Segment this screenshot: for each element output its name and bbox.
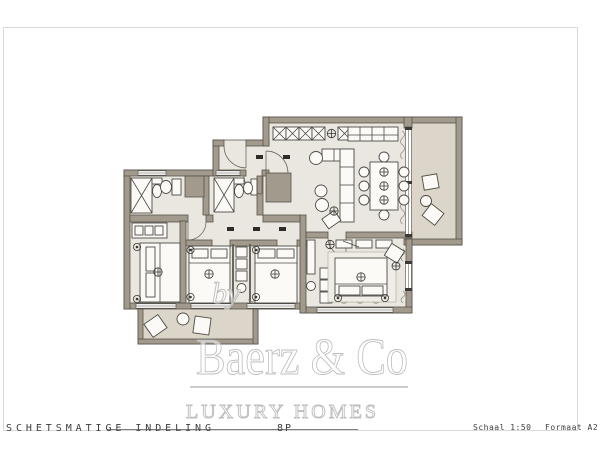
coffee-table — [316, 199, 329, 212]
desk — [307, 240, 315, 274]
dining-chair — [399, 195, 409, 205]
light-symbol — [392, 262, 400, 270]
place-setting — [380, 182, 388, 190]
dining-chair — [399, 181, 409, 191]
light-symbol — [154, 268, 162, 276]
living-closet — [266, 173, 291, 202]
bedroom-3 — [252, 246, 297, 303]
terrace-table — [177, 313, 189, 325]
place-setting — [380, 168, 388, 176]
light-symbol — [330, 207, 338, 215]
tv-cabinet — [336, 240, 392, 248]
x-closet-icon — [273, 127, 286, 140]
floor-plan-drawing: by Baerz & Co LUXURY HOMES SCHETSMATIGE … — [0, 0, 600, 449]
drawing-sheet: by Baerz & Co LUXURY HOMES SCHETSMATIGE … — [0, 0, 600, 449]
place-setting — [380, 196, 388, 204]
title-block: SCHETSMATIGE INDELING 8P Schaal 1:50 For… — [6, 423, 598, 434]
chair — [307, 282, 316, 291]
wardrobe-row — [273, 127, 351, 140]
floor-plan — [124, 117, 462, 344]
light-symbol — [326, 240, 334, 248]
light-symbol — [327, 129, 335, 137]
dining-chair — [379, 210, 389, 220]
bed — [133, 243, 180, 303]
kitchen-counter — [348, 127, 398, 141]
terrace-chair — [422, 174, 439, 190]
hall-closet — [185, 176, 204, 197]
coffee-table — [310, 152, 323, 165]
x-closet-icon — [286, 127, 299, 140]
dining-chair — [399, 167, 409, 177]
bed — [252, 246, 297, 303]
toilet — [234, 178, 244, 198]
dining-chair — [359, 181, 369, 191]
dresser — [132, 223, 167, 238]
format-label: Formaat A2 — [545, 423, 598, 432]
watermark-tagline: LUXURY HOMES — [186, 401, 376, 423]
drawing-title: SCHETSMATIGE INDELING — [6, 423, 211, 434]
watermark-by: by — [212, 277, 241, 310]
x-closet-icon — [299, 127, 312, 140]
x-closet-icon — [312, 127, 325, 140]
watermark-brand: Baerz & Co — [196, 329, 408, 386]
dining-chair — [359, 167, 369, 177]
capacity-label: 8P — [277, 423, 293, 434]
light-symbol — [357, 273, 365, 281]
coffee-table — [315, 185, 327, 197]
shower — [131, 178, 152, 213]
scale-label: Schaal 1:50 — [473, 423, 531, 432]
shower — [214, 178, 234, 212]
bed — [334, 258, 388, 302]
dining-chair — [359, 195, 369, 205]
dining-chair — [379, 152, 389, 162]
light-symbol — [271, 270, 279, 278]
